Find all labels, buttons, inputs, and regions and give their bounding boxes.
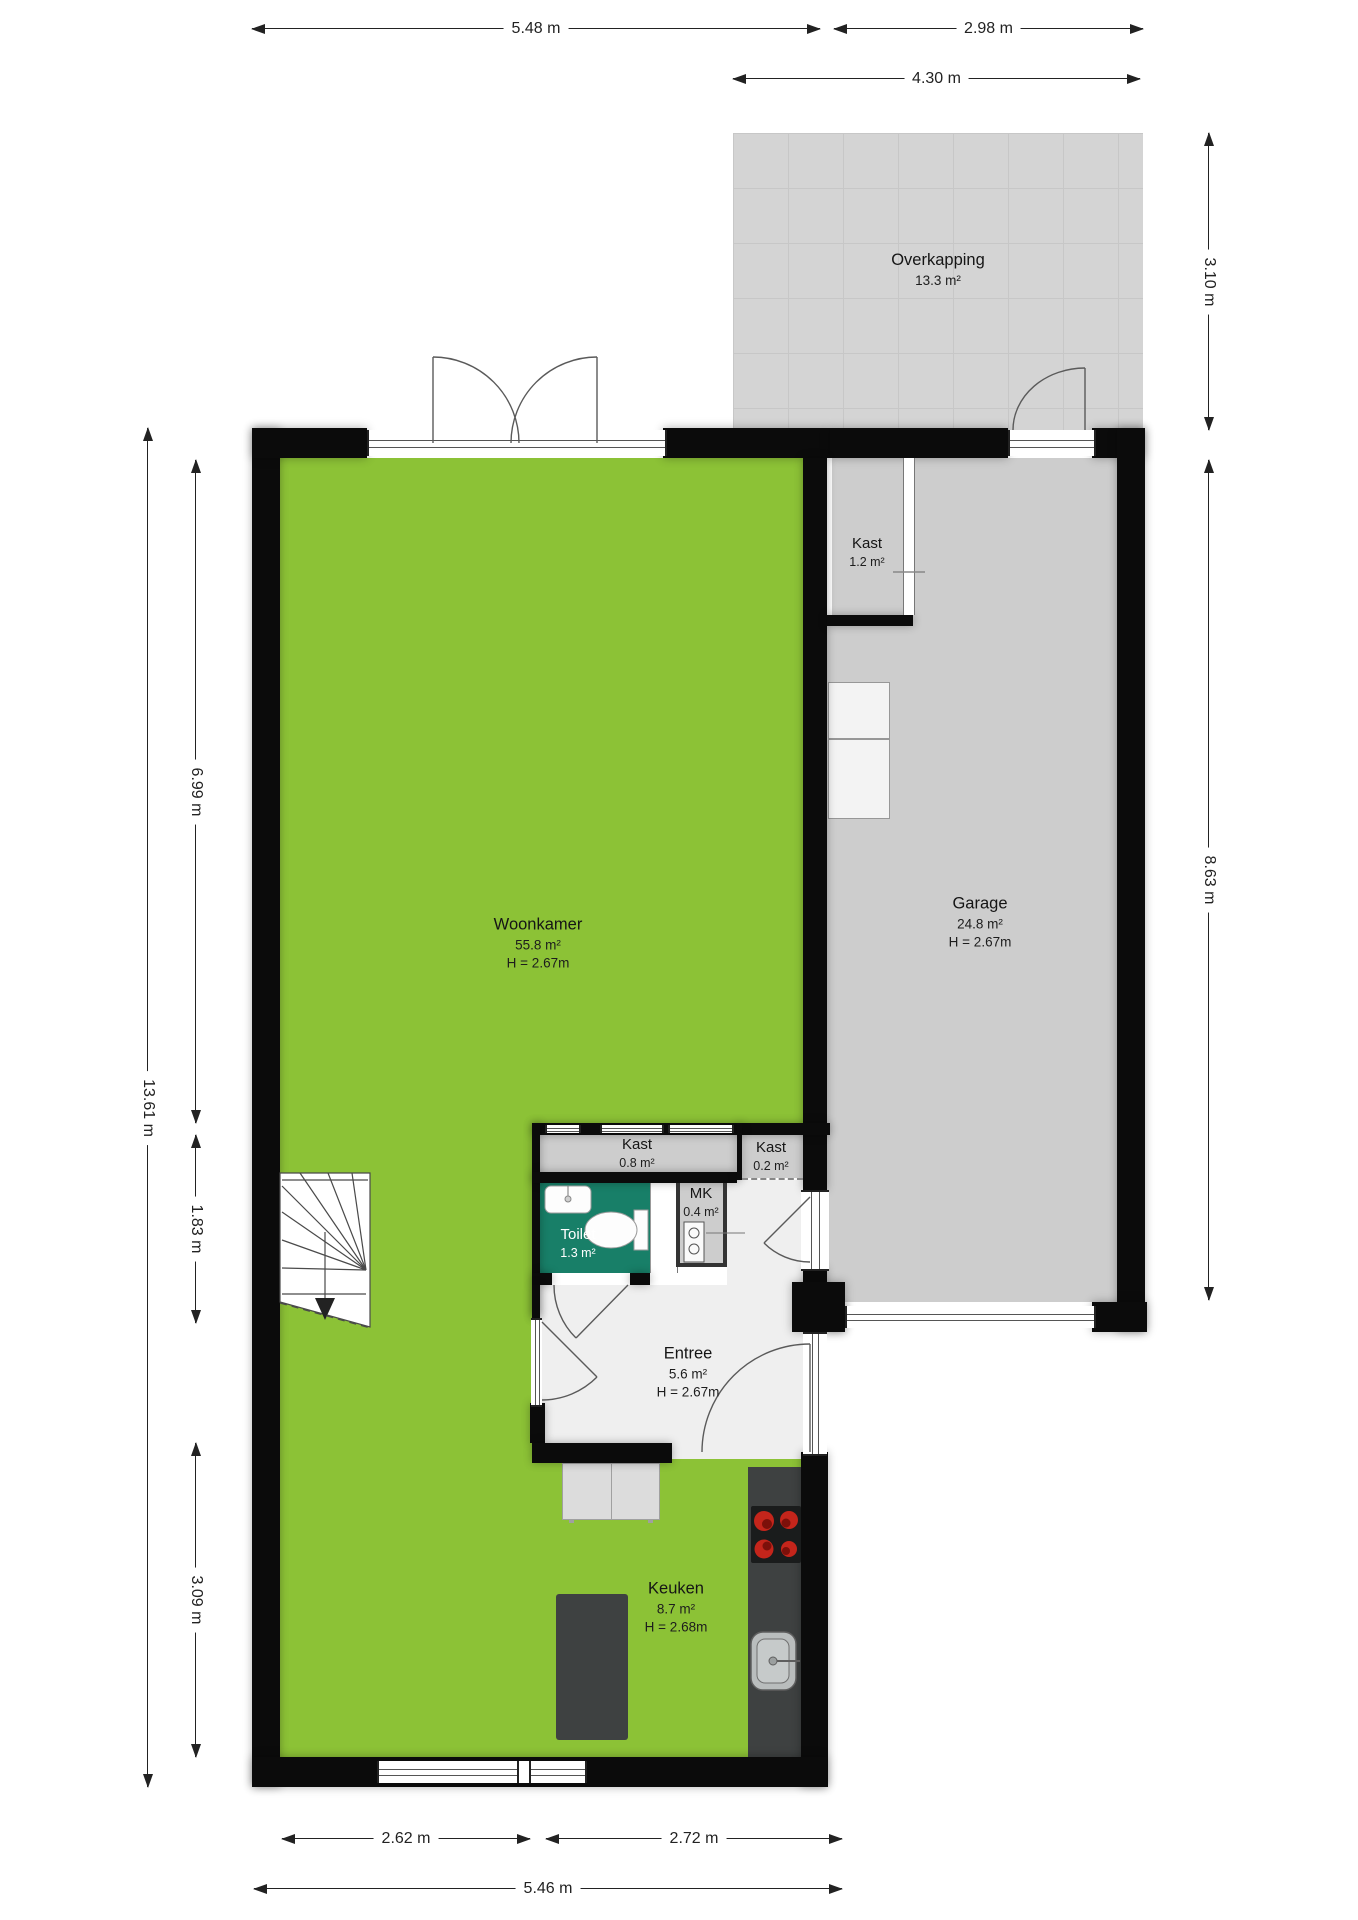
room-area: 55.8 m²: [494, 936, 583, 954]
room-label-mk: MK 0.4 m²: [683, 1184, 718, 1220]
room-label-kast-hal: Kast 0.8 m²: [619, 1135, 654, 1171]
woonkamer-floor-left: [280, 1123, 532, 1463]
garage-floor: [913, 458, 1117, 1302]
door-threshold-woonkamer-entree: [531, 1318, 542, 1407]
dim-label: 2.62 m: [374, 1830, 439, 1848]
keuken-floor: [280, 1455, 803, 1757]
room-name: Garage: [949, 893, 1012, 915]
wall-east-junction: [792, 1282, 845, 1332]
dim-label: 6.99 m: [187, 759, 205, 824]
door-threshold-garage-entree: [801, 1190, 829, 1271]
dim-label: 3.09 m: [187, 1568, 205, 1633]
kast-hal-sliding-door-2: [600, 1125, 664, 1133]
wall-kast-hal-bottom: [532, 1172, 737, 1183]
window-woonkamer-top: [367, 430, 667, 456]
wall-kast-garage-bottom: [827, 615, 913, 626]
dim-label: 13.61 m: [139, 1071, 157, 1145]
window-entree-east: [803, 1332, 827, 1456]
garage-storage-unit-bottom: [828, 739, 890, 819]
room-area: 0.2 m²: [753, 1158, 788, 1175]
wall-east-bottom: [801, 1452, 828, 1787]
wall-entree-west-b: [530, 1403, 545, 1443]
wall-east-divider: [803, 458, 827, 1190]
room-area: 24.8 m²: [949, 915, 1012, 933]
dim-label: 2.72 m: [662, 1830, 727, 1848]
window-garage-bottom: [845, 1306, 1096, 1328]
dim-label: 3.10 m: [1200, 249, 1218, 314]
keuken-counter: [748, 1467, 803, 1757]
dim-label: 5.46 m: [516, 1880, 581, 1898]
wall-right: [1117, 428, 1145, 1332]
room-height: H = 2.67m: [657, 1383, 720, 1401]
room-area: 1.3 m²: [560, 1245, 595, 1262]
woonkamer-floor-upper: [280, 458, 803, 1123]
room-label-kast-entree: Kast 0.2 m²: [753, 1138, 788, 1174]
room-name: Overkapping: [891, 250, 985, 272]
room-height: H = 2.67m: [949, 933, 1012, 951]
room-area: 5.6 m²: [657, 1365, 720, 1383]
garage-storage-unit-top: [828, 682, 890, 739]
room-label-woonkamer: Woonkamer 55.8 m² H = 2.67m: [494, 914, 583, 971]
keuken-cabinet: [562, 1463, 660, 1520]
wall-entree-bottom: [532, 1443, 672, 1463]
room-name: MK: [683, 1184, 718, 1204]
wall-mk-left: [676, 1183, 680, 1263]
room-label-overkapping: Overkapping 13.3 m²: [891, 250, 985, 290]
room-area: 13.3 m²: [891, 272, 985, 290]
room-name: Kast: [619, 1135, 654, 1155]
room-name: Kast: [753, 1138, 788, 1158]
dim-label: 1.83 m: [187, 1197, 205, 1262]
room-area: 8.7 m²: [645, 1600, 708, 1618]
wall-entree-west-a: [532, 1285, 540, 1318]
wall-top-garage: [830, 428, 1008, 458]
window-keuken-bottom: [377, 1761, 587, 1783]
room-area: 0.8 m²: [619, 1155, 654, 1172]
room-name: Kast: [849, 534, 884, 554]
wall-left: [252, 428, 280, 1787]
wall-top-b: [663, 428, 830, 458]
entree-floor-arm: [727, 1180, 803, 1285]
dim-label: 8.63 m: [1200, 848, 1218, 913]
room-label-kast-garage: Kast 1.2 m²: [849, 534, 884, 570]
room-label-entree: Entree 5.6 m² H = 2.67m: [657, 1343, 720, 1400]
wall-top-a: [252, 428, 367, 458]
dim-label: 2.98 m: [956, 20, 1021, 38]
room-height: H = 2.67m: [494, 954, 583, 972]
wall-mk-right: [723, 1183, 727, 1263]
kast-hal-sliding-door-3: [668, 1125, 734, 1133]
dim-label: 4.30 m: [904, 70, 969, 88]
dim-label: 5.48 m: [504, 20, 569, 38]
floorplan-page: Overkapping 13.3 m² Woonkamer 55.8 m² H …: [0, 0, 1358, 1920]
wall-garage-bottom-b: [1092, 1302, 1147, 1332]
room-name: Woonkamer: [494, 914, 583, 936]
room-height: H = 2.68m: [645, 1618, 708, 1636]
keuken-island: [556, 1594, 628, 1740]
toilet-pocket-door: [650, 1183, 678, 1273]
kast-hal-sliding-door-1: [545, 1125, 581, 1133]
room-name: Entree: [657, 1343, 720, 1365]
room-label-garage: Garage 24.8 m² H = 2.67m: [949, 893, 1012, 950]
room-label-keuken: Keuken 8.7 m² H = 2.68m: [645, 1578, 708, 1635]
room-area: 1.2 m²: [849, 554, 884, 571]
wall-toilet-bottom-a: [532, 1273, 552, 1285]
entree-keuken-passage: [672, 1443, 801, 1459]
door-threshold-garage-overkapping: [1008, 430, 1096, 456]
wall-toilet-bottom-b: [630, 1273, 650, 1285]
wall-kast-garage-partition: [903, 458, 915, 615]
room-name: Keuken: [645, 1578, 708, 1600]
wall-mk-bottom: [676, 1263, 727, 1267]
room-name: Toilet: [560, 1225, 595, 1245]
room-area: 0.4 m²: [683, 1204, 718, 1221]
room-label-toilet: Toilet 1.3 m²: [560, 1225, 595, 1261]
